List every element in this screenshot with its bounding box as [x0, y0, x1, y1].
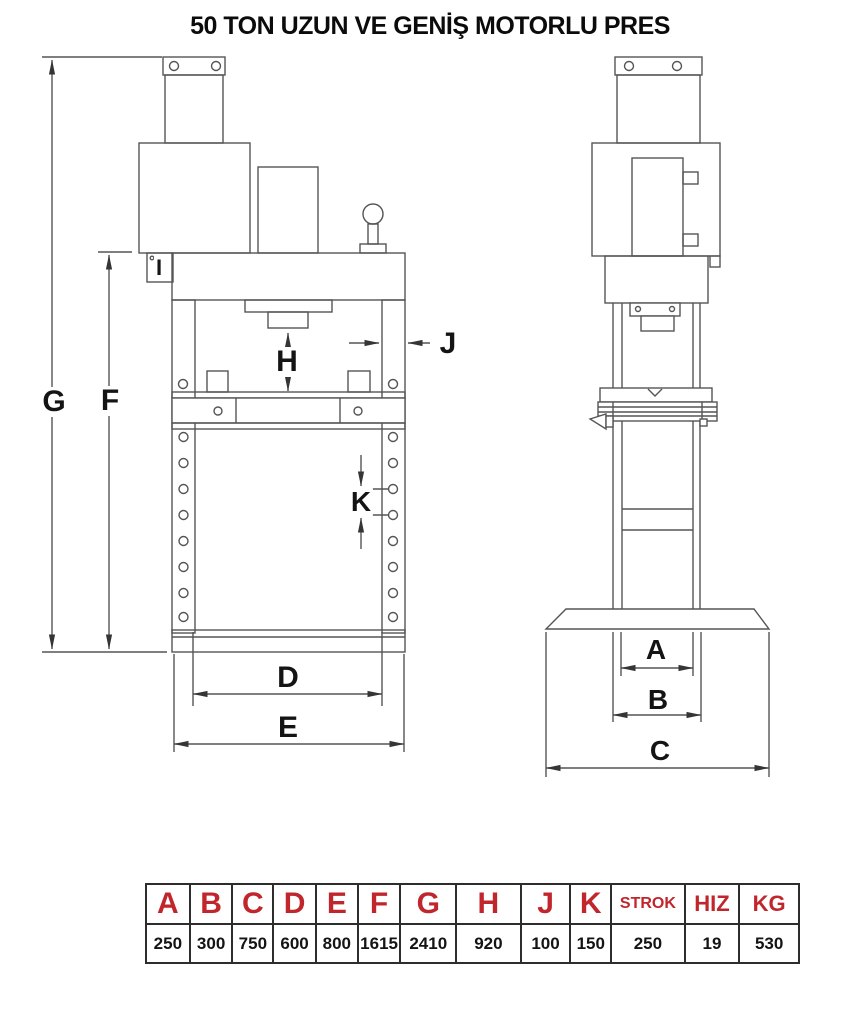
dim-label-e: E — [276, 713, 300, 743]
table-column-k: K 150 — [571, 885, 612, 962]
table-value-cell: 100 — [522, 925, 570, 962]
table-value-cell: 800 — [317, 925, 357, 962]
table-header-cell: B — [191, 885, 232, 925]
dim-label-k: K — [349, 488, 373, 516]
table-header-cell: STROK — [612, 885, 684, 925]
table-header-cell: J — [522, 885, 570, 925]
table-value-cell: 920 — [457, 925, 520, 962]
table-value-cell: 750 — [233, 925, 272, 962]
table-header-cell: A — [147, 885, 189, 925]
table-header-cell: C — [233, 885, 272, 925]
table-column-a: A 250 — [147, 885, 191, 962]
table-value-cell: 2410 — [401, 925, 455, 962]
table-header-cell: K — [571, 885, 610, 925]
table-header-cell: H — [457, 885, 520, 925]
table-column-h: H 920 — [457, 885, 522, 962]
dim-label-j: J — [438, 329, 459, 359]
table-value-cell: 1615 — [359, 925, 400, 962]
table-value-cell: 600 — [274, 925, 315, 962]
dim-label-h: H — [274, 347, 300, 377]
table-value-cell: 19 — [686, 925, 739, 962]
table-column-e: E 800 — [317, 885, 359, 962]
table-column-kg: KG 530 — [740, 885, 798, 962]
table-header-cell: F — [359, 885, 400, 925]
table-column-g: G 2410 — [401, 885, 457, 962]
technical-drawing-page: 50 TON UZUN VE GENİŞ MOTORLU PRES — [0, 0, 860, 1030]
table-column-strok: STROK 250 — [612, 885, 686, 962]
side-view — [546, 57, 769, 777]
spec-table: A 250 B 300 C 750 D 600 E 800 F 1615 G 2… — [145, 883, 800, 964]
table-header-cell: E — [317, 885, 357, 925]
table-header-cell: KG — [740, 885, 798, 925]
table-value-cell: 530 — [740, 925, 798, 962]
table-header-cell: G — [401, 885, 455, 925]
table-column-hiz: HIZ 19 — [686, 885, 741, 962]
table-column-j: J 100 — [522, 885, 572, 962]
table-header-cell: D — [274, 885, 315, 925]
table-value-cell: 300 — [191, 925, 232, 962]
press-line-drawing — [0, 0, 860, 830]
dim-label-c: C — [648, 737, 672, 765]
dim-label-b: B — [646, 686, 670, 714]
dim-label-d: D — [275, 663, 301, 693]
dim-label-a: A — [644, 636, 668, 664]
table-column-c: C 750 — [233, 885, 274, 962]
table-value-cell: 150 — [571, 925, 610, 962]
table-value-cell: 250 — [147, 925, 189, 962]
column-holes — [179, 433, 398, 622]
table-value-cell: 250 — [612, 925, 684, 962]
dim-label-f: F — [99, 386, 121, 416]
table-header-cell: HIZ — [686, 885, 739, 925]
table-column-b: B 300 — [191, 885, 234, 962]
dim-label-g: G — [40, 387, 67, 417]
table-column-d: D 600 — [274, 885, 317, 962]
dim-label-i: I — [154, 257, 164, 279]
table-column-f: F 1615 — [359, 885, 402, 962]
